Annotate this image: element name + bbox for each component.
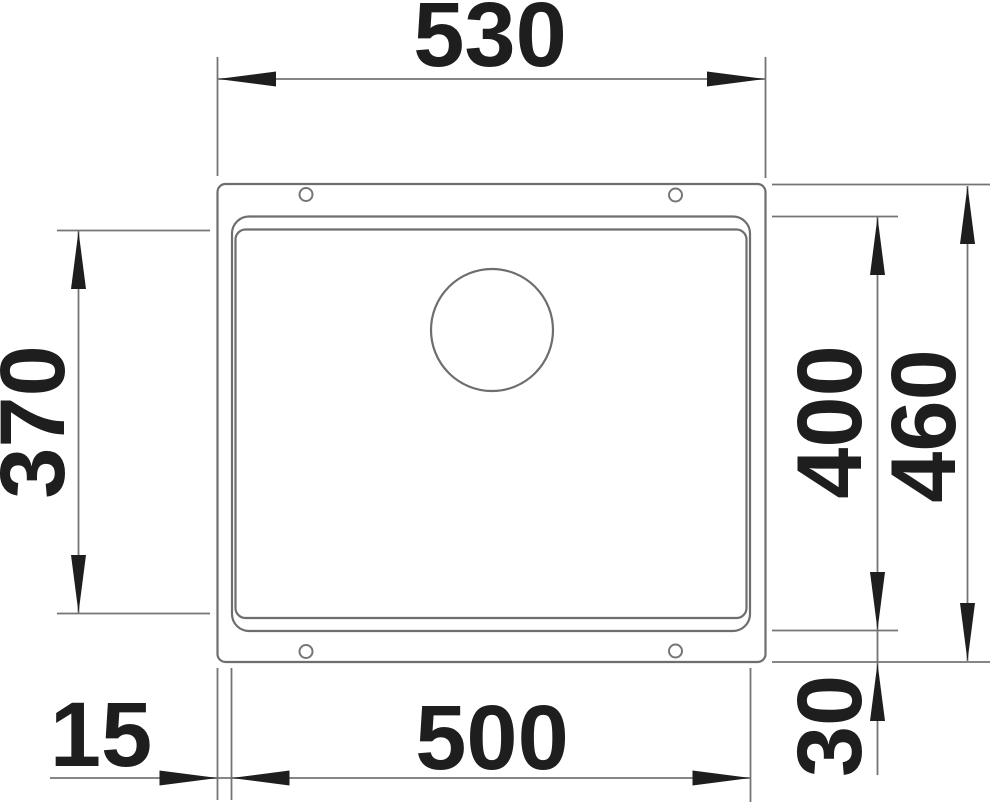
arrowhead-up-icon [960, 186, 975, 244]
bowl-rim-edge [232, 217, 750, 632]
arrowhead-right-icon [160, 771, 218, 786]
bowl-depth-label: 400 [779, 345, 881, 499]
arrowhead-down-icon [960, 603, 975, 661]
bowl-inner-edge [236, 230, 747, 619]
inner-depth-label: 370 [0, 345, 84, 499]
bowl-width-label: 500 [415, 687, 569, 789]
arrowhead-up-icon [870, 217, 885, 275]
arrowhead-left-icon [232, 771, 290, 786]
sink-dimension-drawing: 530 370 400 30 [0, 0, 992, 802]
arrowhead-right-icon [693, 771, 751, 786]
outer-width-label: 530 [413, 0, 567, 86]
dimension-rim-offset-bottom: 30 [779, 663, 885, 777]
sink-outline [218, 184, 766, 662]
arrowhead-left-icon [218, 72, 276, 87]
dimension-bowl-width: 500 [50, 668, 751, 802]
outer-depth-label: 460 [873, 349, 975, 503]
mounting-hole-bottom-left [300, 645, 313, 658]
arrowhead-down-icon [870, 572, 885, 630]
sink-outer-edge [218, 184, 766, 662]
arrowhead-down-icon [71, 555, 86, 613]
rim-offset-bottom-label: 30 [779, 675, 881, 777]
arrowhead-up-icon [71, 231, 86, 289]
mounting-hole-bottom-right [669, 645, 682, 658]
rim-offset-left-label: 15 [50, 684, 152, 786]
mounting-hole-top-left [300, 188, 313, 201]
dimension-rim-offset-left: 15 [50, 684, 218, 786]
dimension-outer-width: 530 [218, 0, 766, 178]
dimension-inner-depth: 370 [0, 231, 210, 614]
drawing-canvas: 530 370 400 30 [0, 0, 992, 802]
arrowhead-right-icon [707, 72, 765, 87]
mounting-hole-top-right [669, 189, 682, 202]
drain-hole [431, 269, 553, 391]
